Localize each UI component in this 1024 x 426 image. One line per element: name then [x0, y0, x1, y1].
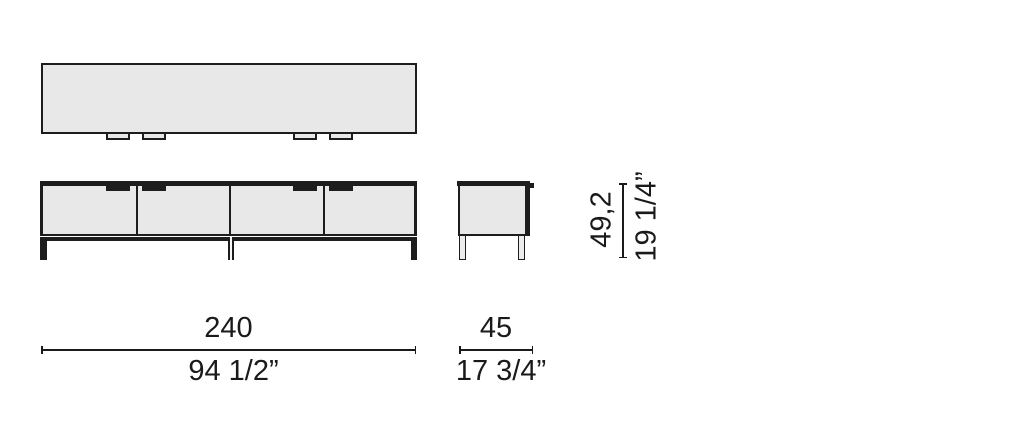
front-leg-left	[40, 237, 47, 260]
side-view	[457, 181, 535, 260]
front-leg-right	[411, 237, 418, 260]
depth-dimension-line	[459, 349, 533, 351]
front-door-divider-3	[323, 186, 325, 234]
door-handle-2	[142, 186, 166, 191]
side-leg-back	[459, 235, 466, 260]
side-leg-front	[518, 235, 525, 260]
height-dimension-tick-bottom	[619, 257, 627, 259]
width-dimension-tick-right	[415, 346, 417, 354]
plan-handle-tab-3	[293, 134, 317, 140]
front-door-divider-1	[136, 186, 138, 234]
width-dimension-cm-label: 240	[41, 314, 416, 343]
height-dimension-tick-top	[619, 183, 627, 185]
furniture-dimension-drawing: 49,2 19 1/4” 240 94 1/2” 45 17 3/4”	[0, 0, 1024, 426]
door-handle-3	[293, 186, 317, 191]
depth-dimension-tick-right	[532, 346, 534, 354]
door-handle-1	[106, 186, 130, 191]
width-dimension-line	[41, 349, 416, 351]
width-dimension-inches-label: 94 1/2”	[46, 357, 421, 386]
depth-dimension-cm-label: 45	[429, 314, 563, 343]
front-door-divider-2	[229, 186, 231, 234]
height-dimension-cm-label: 49,2	[587, 120, 616, 320]
plan-view-outline	[41, 63, 417, 134]
width-dimension-tick-left	[41, 346, 43, 354]
plan-view	[41, 63, 417, 134]
side-body-panel	[458, 186, 530, 236]
depth-dimension-tick-left	[459, 346, 461, 354]
height-dimension-line	[622, 183, 624, 258]
front-view	[40, 181, 417, 260]
height-dimension-inches-label: 19 1/4”	[633, 116, 662, 316]
plan-handle-tab-4	[329, 134, 353, 140]
plan-handle-tab-1	[106, 134, 130, 140]
front-leg-center	[228, 237, 234, 260]
plan-handle-tab-2	[142, 134, 166, 140]
door-handle-4	[329, 186, 353, 191]
depth-dimension-inches-label: 17 3/4”	[434, 357, 568, 386]
